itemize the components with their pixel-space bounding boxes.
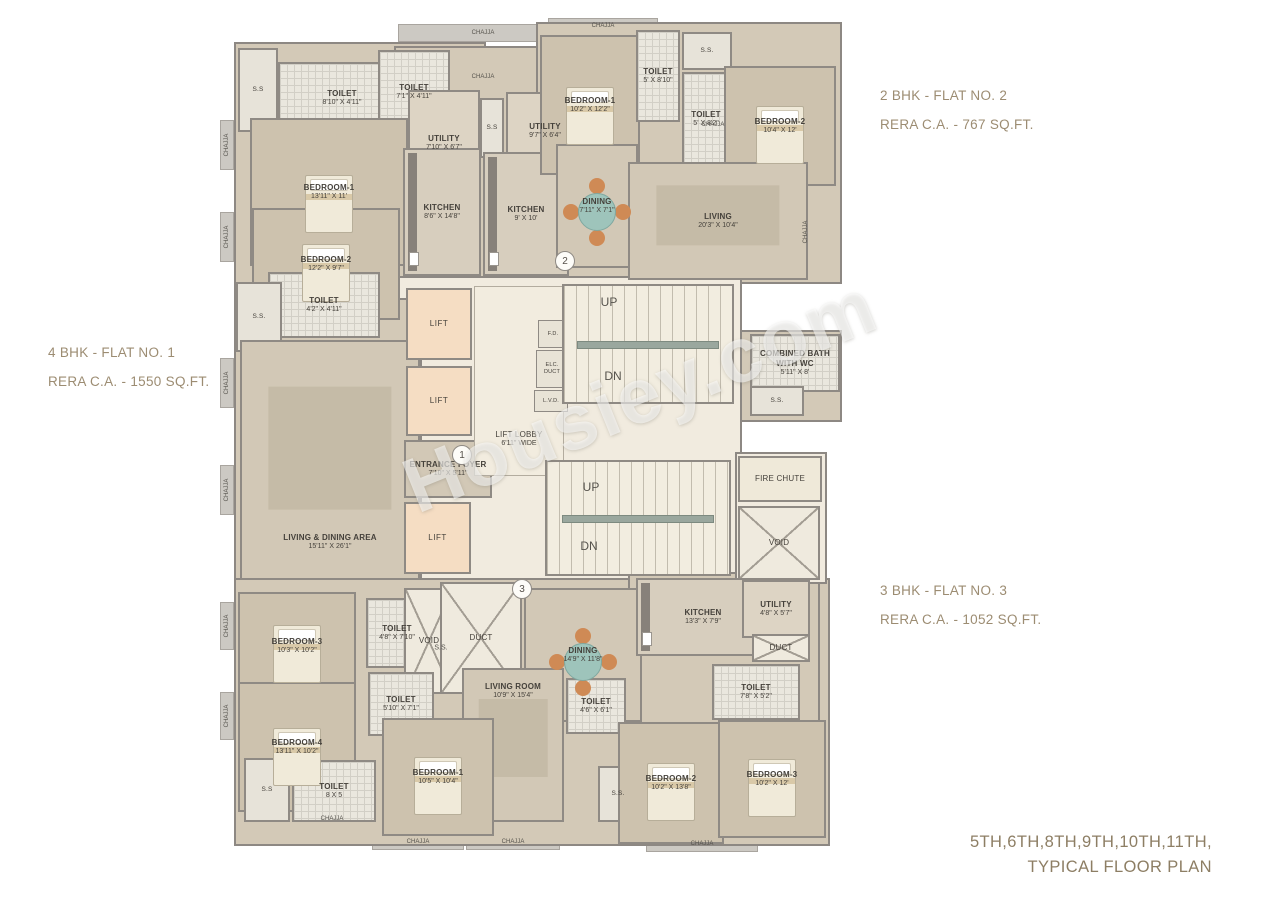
room-toilet-f2-a: TOILET5' X 8'10" bbox=[636, 30, 680, 122]
chajja-label: CHAJJA bbox=[321, 816, 344, 822]
flat2-title: 2 BHK - FLAT NO. 2 bbox=[880, 88, 1034, 103]
flat-number-marker-2: 2 bbox=[555, 251, 575, 271]
room-label: S.S. bbox=[611, 790, 624, 798]
room-bedroom-3-f3: BEDROOM-310'2" X 12' bbox=[718, 720, 826, 838]
chajja-label: CHAJJA bbox=[592, 23, 615, 29]
room-label: DUCT bbox=[769, 643, 792, 653]
room-label: S.S bbox=[486, 124, 497, 132]
flat-number-marker-1: 1 bbox=[452, 445, 472, 465]
room-label: LIFT bbox=[430, 319, 448, 329]
chajja-label: CHAJJA bbox=[224, 226, 230, 249]
room-label: DINING14'9" X 11'8" bbox=[563, 646, 602, 665]
room-label: LIVING & DINING AREA15'11" X 26'1" bbox=[283, 533, 376, 552]
room-label: BEDROOM-212'2" X 9'7" bbox=[301, 255, 352, 274]
flat2-area: RERA C.A. - 767 SQ.FT. bbox=[880, 117, 1034, 132]
room-label: S.S bbox=[261, 786, 272, 794]
flat1-title: 4 BHK - FLAT NO. 1 bbox=[48, 345, 209, 360]
room-toilet-f2-b: TOILET5' X 8'2" bbox=[682, 72, 730, 166]
stair-direction-label: UP bbox=[583, 480, 600, 494]
room-void-right: VOID bbox=[738, 506, 820, 580]
room-label: TOILET8'10" X 4'11" bbox=[322, 89, 361, 108]
room-label: LIVING20'3" X 10'4" bbox=[698, 212, 738, 231]
room-label: S.S. bbox=[770, 397, 783, 405]
room-stair-1 bbox=[562, 284, 734, 404]
room-ss-bath: S.S. bbox=[750, 386, 804, 416]
room-ss-utility: S.S bbox=[480, 98, 504, 158]
room-label: BEDROOM-310'2" X 12' bbox=[747, 770, 798, 789]
room-label: LIFT bbox=[428, 533, 446, 543]
bed-icon bbox=[647, 763, 695, 821]
chajja-label: CHAJJA bbox=[224, 705, 230, 728]
room-label: LIVING ROOM10'9" X 15'4" bbox=[485, 682, 541, 701]
room-label: COMBINED BATH WITH WC5'11" X 8' bbox=[752, 349, 838, 378]
chajja-label: CHAJJA bbox=[224, 134, 230, 157]
stair-direction-label: DN bbox=[604, 369, 621, 383]
room-lift-3: LIFT bbox=[404, 502, 471, 574]
room-label: VOID bbox=[769, 538, 789, 548]
room-label: BEDROOM-110'2" X 12'2" bbox=[565, 96, 616, 115]
room-stair-2 bbox=[545, 460, 731, 576]
room-label: BEDROOM-413'11" X 10'2" bbox=[272, 738, 323, 757]
room-label: FIRE CHUTE bbox=[755, 474, 805, 484]
room-label: KITCHEN13'3" X 7'9" bbox=[685, 608, 722, 627]
stair-direction-label: DN bbox=[580, 539, 597, 553]
room-ss-f2: S.S. bbox=[682, 32, 732, 70]
flat1-area: RERA C.A. - 1550 SQ.FT. bbox=[48, 374, 209, 389]
room-label: DUCT bbox=[469, 633, 492, 643]
room-label: BEDROOM-210'2" X 13'8" bbox=[646, 774, 697, 793]
chajja-label: CHAJJA bbox=[472, 74, 495, 80]
room-label: KITCHEN8'6" X 14'8" bbox=[424, 203, 461, 222]
flat1-annotation: 4 BHK - FLAT NO. 1 RERA C.A. - 1550 SQ.F… bbox=[48, 345, 209, 403]
room-living-dining-f1: LIVING & DINING AREA15'11" X 26'1" bbox=[240, 340, 420, 580]
chajja-label: CHAJJA bbox=[472, 30, 495, 36]
room-label: BEDROOM-113'11" X 11' bbox=[304, 183, 355, 202]
room-label: UTILITY9'7" X 6'4" bbox=[529, 122, 561, 141]
floor-plan: S.STOILET8'10" X 4'11"TOILET7'1" X 4'11"… bbox=[0, 0, 1280, 905]
room-label: BEDROOM-110'5" X 10'4" bbox=[413, 768, 464, 787]
flat3-annotation: 3 BHK - FLAT NO. 3 RERA C.A. - 1052 SQ.F… bbox=[880, 583, 1041, 641]
room-combined-bath: COMBINED BATH WITH WC5'11" X 8' bbox=[750, 334, 840, 392]
room-label: S.S. bbox=[252, 313, 265, 321]
plan-title: 5TH,6TH,8TH,9TH,10TH,11TH, TYPICAL FLOOR… bbox=[970, 830, 1212, 880]
room-utility-f3: UTILITY4'8" X 5'7" bbox=[742, 580, 810, 638]
room-lift-2: LIFT bbox=[406, 366, 472, 436]
room-lift-1: LIFT bbox=[406, 288, 472, 360]
room-label: TOILET8 X 5 bbox=[319, 782, 349, 801]
chajja-label: CHAJJA bbox=[224, 479, 230, 502]
chajja-label: CHAJJA bbox=[502, 839, 525, 845]
flat3-title: 3 BHK - FLAT NO. 3 bbox=[880, 583, 1041, 598]
room-kitchen-f1: KITCHEN8'6" X 14'8" bbox=[403, 148, 481, 276]
room-dining-f2: DINING7'11" X 7'1" bbox=[556, 144, 638, 268]
flat2-annotation: 2 BHK - FLAT NO. 2 RERA C.A. - 767 SQ.FT… bbox=[880, 88, 1034, 146]
room-label: UTILITY7'10" X 6'7" bbox=[426, 134, 462, 153]
room-duct-f3: DUCT bbox=[752, 634, 810, 662]
misc-label: S.S. bbox=[434, 645, 447, 652]
room-label: ENTRANCE FOYER7'10" X 5'11" bbox=[409, 460, 486, 479]
room-bedroom-1-f3: BEDROOM-110'5" X 10'4" bbox=[382, 718, 494, 836]
room-toilet-f3-a: TOILET7'8" X 5'2" bbox=[712, 664, 800, 720]
room-label: ELC. DUCT bbox=[537, 362, 567, 376]
flat3-area: RERA C.A. - 1052 SQ.FT. bbox=[880, 612, 1041, 627]
chajja-label: CHAJJA bbox=[407, 839, 430, 845]
room-label: TOILET4'2" X 4'11" bbox=[306, 296, 341, 315]
room-label: LIFT LOBBY6'11" WIDE bbox=[495, 430, 542, 449]
room-bedroom-2-f3: BEDROOM-210'2" X 13'8" bbox=[618, 722, 724, 844]
chajja-label: CHAJJA bbox=[702, 122, 725, 128]
chajja-label: CHAJJA bbox=[224, 615, 230, 638]
chajja-label: CHAJJA bbox=[224, 372, 230, 395]
chajja-label: CHAJJA bbox=[803, 221, 809, 244]
room-label: TOILET5'10" X 7'1" bbox=[383, 695, 419, 714]
room-label: LIFT bbox=[430, 396, 448, 406]
room-label: UTILITY4'8" X 5'7" bbox=[760, 600, 792, 619]
room-label: BEDROOM-310'3" X 10'2" bbox=[272, 637, 323, 656]
room-fire-chute: FIRE CHUTE bbox=[738, 456, 822, 502]
room-label: TOILET5' X 8'10" bbox=[643, 67, 673, 86]
room-living-f2: LIVING20'3" X 10'4" bbox=[628, 162, 808, 280]
room-label: S.S. bbox=[700, 47, 713, 55]
room-toilet-f3-b: TOILET4'6" X 6'1" bbox=[566, 678, 626, 734]
rug-icon bbox=[268, 387, 391, 510]
room-label: F.D. bbox=[548, 331, 559, 338]
room-label: L.V.D. bbox=[543, 398, 559, 405]
plan-title-floors: 5TH,6TH,8TH,9TH,10TH,11TH, bbox=[970, 830, 1212, 855]
room-label: TOILET4'6" X 6'1" bbox=[580, 697, 612, 716]
room-label: S.S bbox=[252, 86, 263, 94]
room-label: DINING7'11" X 7'1" bbox=[579, 197, 614, 216]
plan-title-type: TYPICAL FLOOR PLAN bbox=[970, 855, 1212, 880]
chajja-label: CHAJJA bbox=[691, 841, 714, 847]
room-label: KITCHEN9' X 10' bbox=[508, 205, 545, 224]
room-label: BEDROOM-210'4" X 12' bbox=[755, 117, 806, 136]
room-label: TOILET4'8" X 7'10" bbox=[379, 624, 415, 643]
floor-plan-page: S.STOILET8'10" X 4'11"TOILET7'1" X 4'11"… bbox=[0, 0, 1280, 905]
room-label: TOILET7'1" X 4'11" bbox=[396, 83, 431, 102]
flat-number-marker-3: 3 bbox=[512, 579, 532, 599]
room-label: TOILET7'8" X 5'2" bbox=[740, 683, 772, 702]
stair-direction-label: UP bbox=[601, 295, 618, 309]
